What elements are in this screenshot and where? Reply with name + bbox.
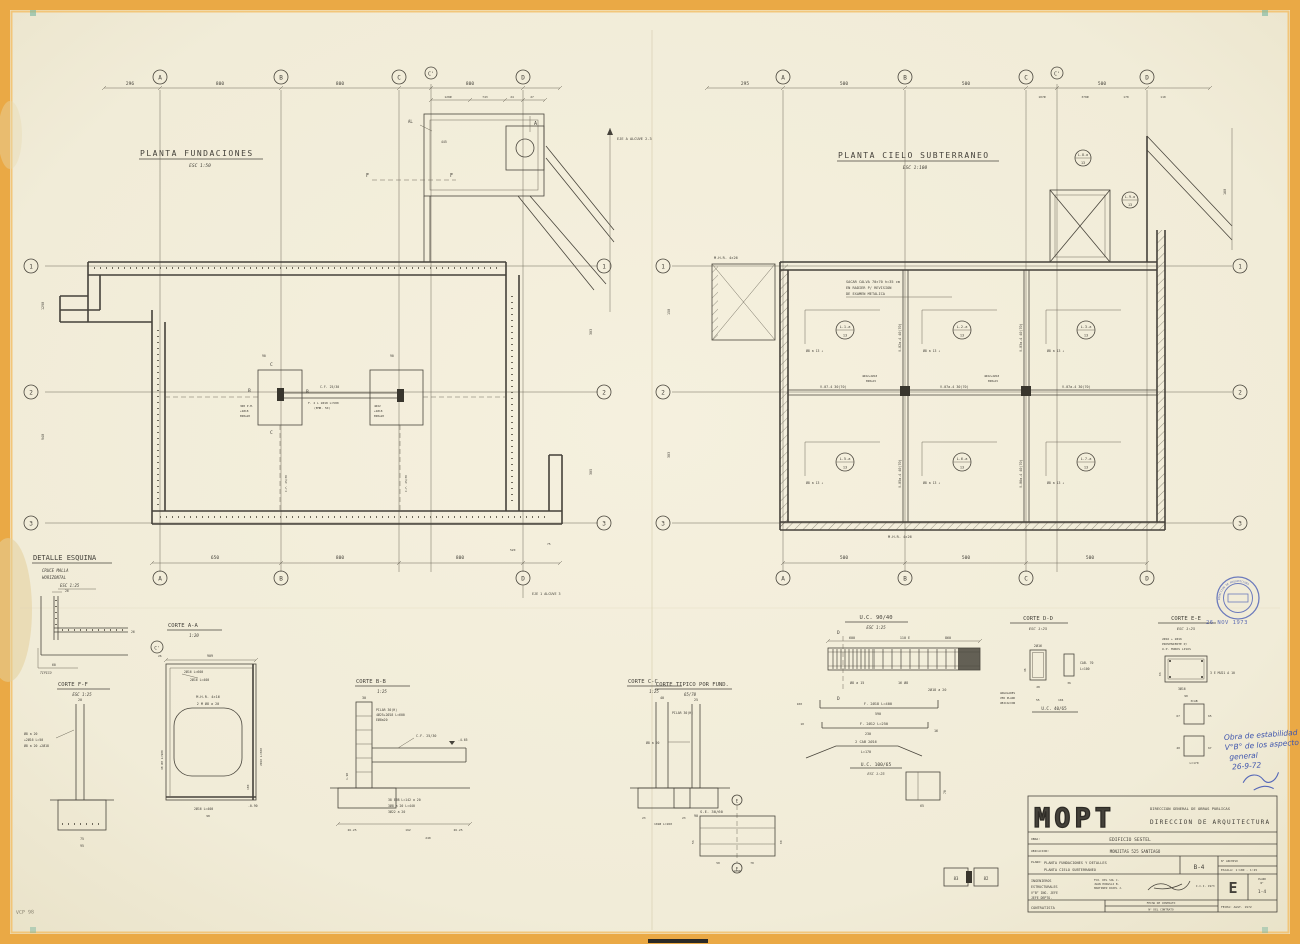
field-value: EDIFICIO SESTEL xyxy=(1109,837,1151,843)
rebar-label: 48 Ø8 L=900 xyxy=(159,750,164,770)
plan-title: PLANTA CIELO SUBTERRANEO xyxy=(838,151,990,160)
dim-label: 26 xyxy=(65,589,69,593)
mesh-label: M.H.R. 4×26 xyxy=(714,256,738,260)
dim-label: 10 xyxy=(800,722,804,726)
scanned-drawing: VCP 98 PLANTA FUNDACIONES ESC 1:50 A B C… xyxy=(0,0,1300,944)
slab-mark: L.9-a13 xyxy=(1122,192,1138,208)
slab-id: L.2-a xyxy=(957,325,968,329)
grid-letter: A xyxy=(158,75,162,82)
note-line: VER PLANO xyxy=(1000,696,1015,700)
block-mark: 82 xyxy=(984,876,989,881)
rebar-label: 3Ø22 a 20 xyxy=(388,809,405,814)
dim-label: 24 xyxy=(510,95,514,99)
note-line: UBICACION xyxy=(1000,701,1015,705)
dim-label: 150 xyxy=(667,309,671,315)
sheet-letter: E xyxy=(1228,879,1237,897)
plan-scale: ESC 1:50 xyxy=(189,163,211,169)
dim-label: 67 xyxy=(1208,746,1212,750)
dim-label: 370Ø xyxy=(1081,94,1088,99)
blueprint-sheet: VCP 98 PLANTA FUNDACIONES ESC 1:50 A B C… xyxy=(0,0,1300,944)
detail-title: S.E. 30/60 xyxy=(700,809,724,814)
mopt-logo: MOPT xyxy=(1034,803,1115,834)
grid-number: 2 xyxy=(1238,390,1242,397)
rebar-label: 3CAB xyxy=(1190,699,1197,703)
slab-thickness: 13 xyxy=(960,334,964,338)
grid-number: 1 xyxy=(661,264,665,271)
dim-label: 500 xyxy=(962,81,970,87)
note-line: ANGULARES xyxy=(1000,691,1015,695)
rebar-label: L=100 xyxy=(1080,667,1090,671)
grid-letter: A xyxy=(781,576,785,583)
slab-rebar: Ø8 a 13 ↓ xyxy=(806,348,823,353)
dim-label: 107Ø xyxy=(1038,94,1045,99)
archive-code: VCP 98 xyxy=(16,909,34,916)
dim-label: 104 xyxy=(1058,698,1064,702)
slab-thickness: 13 xyxy=(1084,334,1088,338)
detail-title: CORTE TIPICO POR FUND. xyxy=(656,682,729,688)
section-mark: D xyxy=(837,630,840,636)
slab-id: L.3-a xyxy=(1081,325,1092,329)
section-mark: B xyxy=(248,388,251,394)
detail-scale: 1:25 xyxy=(649,689,659,694)
section-mark: C xyxy=(270,430,273,436)
field-label: N° ARCHIVO xyxy=(1221,859,1238,863)
dim-label: 110 E xyxy=(900,636,910,640)
grid-number: 3 xyxy=(661,521,665,528)
grid-letter: C' xyxy=(1054,72,1060,78)
slab-rebar: Ø8 a 13 ↓ xyxy=(806,480,823,485)
rebar-label: Ø8 a 15 xyxy=(850,680,864,685)
grid-letter: D xyxy=(1145,75,1149,82)
date-stamp: 26 NOV 1973 xyxy=(1206,620,1248,626)
slab-id: L.5-a xyxy=(840,457,851,461)
detail-scale: ESC 1:25 xyxy=(867,772,884,776)
dim-label: 90 xyxy=(694,814,698,818)
dim-label: 743 xyxy=(482,95,488,99)
dim-label: 23 xyxy=(682,816,686,820)
beam-joint xyxy=(1021,386,1031,396)
grid-letter: C' xyxy=(428,72,434,78)
rebar-label: +2Ø18 xyxy=(374,408,383,413)
dim-label: 102Ø L=260 xyxy=(654,821,672,826)
detail-title: CORTE D-D xyxy=(1023,616,1053,622)
grid-letter: C xyxy=(397,75,401,82)
detail-title: CORTE B-B xyxy=(356,679,386,685)
dim-label: 520 xyxy=(510,548,516,552)
dim-label: 90 xyxy=(1184,694,1188,698)
slab-thickness: 13 xyxy=(1128,203,1132,207)
dim-label: 500 xyxy=(1086,555,1094,561)
field-label: JEFE DEPTO. xyxy=(1031,896,1052,900)
pedestal xyxy=(397,389,404,402)
detail-note: TIPICO xyxy=(40,671,52,675)
dim-label: 170 xyxy=(1123,95,1129,99)
section-mark: D xyxy=(837,696,840,702)
dim-label: 100 xyxy=(797,702,803,706)
rebar-label: 2Ø16 xyxy=(1034,643,1042,648)
grid-number: 1 xyxy=(602,264,606,271)
dim-label: 70 xyxy=(943,790,947,794)
rebar-label: 4Ø22 xyxy=(374,403,381,408)
dim-label: 20 xyxy=(78,698,82,702)
note-line: DE EXAMEN METALICA xyxy=(846,292,886,296)
dim-label: 295 xyxy=(741,81,749,87)
dim-label: 180 xyxy=(246,784,250,790)
dim-label: 303 xyxy=(667,452,671,458)
mesh-label: M.H.R. 4×26 xyxy=(888,535,912,539)
detail-subtitle: CRUCE MALLA xyxy=(42,568,69,573)
field-label: OBRA: xyxy=(1031,837,1040,841)
beam-label: V.07a-4 30(70) xyxy=(940,385,969,389)
slab-id: L.1-a xyxy=(840,325,851,329)
detail-title: U.C. 90/40 xyxy=(859,615,892,621)
grid-number: 2 xyxy=(29,390,33,397)
beam-label: V.03a-4 40(70) xyxy=(1019,323,1023,352)
dim-label: 230 xyxy=(865,732,871,736)
beam-label: V.06a-4 40(70) xyxy=(1019,459,1023,488)
grid-letter: D xyxy=(521,576,525,583)
axis-note: EJE 1 ALCUVE 3 xyxy=(532,592,561,596)
dim-label: 590 xyxy=(875,712,881,716)
dim-label: 40 xyxy=(1176,746,1180,750)
dim-label: 90 xyxy=(262,354,266,358)
dim-label: L=170 xyxy=(861,750,871,754)
field-value: MONJITAS 525 SANTIAGO xyxy=(1110,849,1161,854)
rebar-label: 2Ø16 L=600 xyxy=(184,669,203,674)
beam-label: C.F. 25/30 xyxy=(416,734,436,738)
field-label: FECHA DE CONTRATO xyxy=(1147,901,1176,905)
grid-number: 3 xyxy=(29,521,33,528)
field-value: PLANTA FUNDACIONES Y DETALLES xyxy=(1044,861,1107,865)
dim-label: 1040 xyxy=(733,869,740,873)
dim-label: 50 xyxy=(716,861,720,865)
grid-letter: A xyxy=(781,75,785,82)
rebar-label: 2Ø16 L=600 xyxy=(258,748,263,766)
dim-label: 26.25 xyxy=(453,828,462,832)
dim-label: 65 xyxy=(1208,714,1212,718)
dim-label: 95 xyxy=(80,844,84,848)
dim-label: 65 xyxy=(920,804,924,808)
dim-label: 53 xyxy=(691,840,695,844)
pedestal xyxy=(277,388,284,401)
dim-label: 120Ø xyxy=(444,94,451,99)
dim-label: 27 xyxy=(530,95,534,99)
beam-label: V.07-4 30(70) xyxy=(820,385,847,389)
dim-label: 500 xyxy=(1098,81,1106,87)
beam-label: C.F. 25/30 xyxy=(404,475,408,492)
rebar-label: EØ8a15 xyxy=(866,378,876,383)
rebar-label: (EMB. 50) xyxy=(314,406,330,410)
note-line: EN RADIER P/ REVISION xyxy=(846,286,891,290)
dim-label: 40 xyxy=(660,696,664,700)
beam-label: V.07a-4 30(70) xyxy=(1062,385,1091,389)
grid-number: 2 xyxy=(661,390,665,397)
dim-label: 600 xyxy=(849,636,855,640)
slab-id: L.7-a xyxy=(1081,457,1092,461)
dim-label: 240 xyxy=(425,836,431,840)
beam-label: C.F. 25/30 xyxy=(284,475,288,492)
dim-label: 860 xyxy=(945,636,951,640)
note-line: U.P. MUROS LISOS xyxy=(1162,647,1191,651)
field-value: FECHA: AGST. 1972 xyxy=(1221,905,1252,909)
section-mark: F xyxy=(450,173,453,179)
slab-thickness: 13 xyxy=(843,466,847,470)
field-label: PLANO: xyxy=(1031,860,1042,864)
rebar-label: EØ8a20 xyxy=(374,413,384,418)
stirrup-ticks xyxy=(874,649,958,669)
rebar-label: PILAR 30(H) xyxy=(672,711,693,715)
dim-label: 55 xyxy=(1036,698,1040,702)
dim-label: 162 xyxy=(405,828,411,832)
rebar-label: F. 2Ø12 L=250 xyxy=(860,721,888,726)
rebar-label: CAB. 70 xyxy=(1080,661,1094,665)
field-label: CONTRATISTA xyxy=(1031,906,1056,910)
detail-title: CORTE F-F xyxy=(58,682,88,688)
field-label: N° DEL CONTRATO xyxy=(1148,908,1174,912)
dim-label: L=170 xyxy=(1189,761,1198,765)
rebar-label: 3 E MU21 A 10 xyxy=(1210,671,1235,675)
grid-number: 3 xyxy=(602,521,606,528)
detail-title: U.C. 100/65 xyxy=(861,762,892,768)
date-note: I.C.I. 1973 xyxy=(1196,884,1215,888)
dim-label: 303 xyxy=(589,329,593,335)
dim-label: 36 xyxy=(1067,681,1071,685)
rebar-label: 4Ø22+2Ø18 xyxy=(862,373,877,378)
dim-label: 75 xyxy=(80,837,84,841)
dim-label: 16 xyxy=(934,729,938,733)
rebar-label: 3Ø8 a 20 L=440 xyxy=(388,803,415,808)
rebar-label: Ø8 a 20 +2Ø18 xyxy=(24,743,49,748)
level-label: -0.90 xyxy=(248,804,258,808)
dim-label: 1290 xyxy=(41,302,45,310)
rebar-label: 2Ø18 a 20 xyxy=(928,687,946,692)
rebar-label: 4Ø25+2Ø18 L=600 xyxy=(376,712,405,717)
plan-scale: ESC 1:100 xyxy=(903,165,928,171)
rebar-label: 3Ø16 xyxy=(1178,686,1186,691)
detail-title: CORTE A-A xyxy=(168,623,198,629)
dim-label: 46 xyxy=(1023,668,1027,672)
dim-label: 26 xyxy=(158,654,162,658)
pit-label: AL xyxy=(408,119,413,124)
grid-letter: C xyxy=(1024,576,1028,583)
dim-label: 26 xyxy=(131,630,135,634)
section-mark: F xyxy=(366,173,369,179)
slab-rebar: Ø8 a 13 ↓ xyxy=(923,348,940,353)
section-mark: C xyxy=(270,362,273,368)
section-mark: A xyxy=(534,121,537,127)
dim-label: 67 xyxy=(1176,714,1180,718)
rebar-label: PILAR 30(H) xyxy=(376,708,397,712)
slab-thickness: 13 xyxy=(843,334,847,338)
beam-joint xyxy=(900,386,910,396)
dim-label: 28 xyxy=(1036,685,1040,689)
dim-label: 98 xyxy=(206,814,210,818)
grid-letter: A xyxy=(158,576,162,583)
stirrup-ticks xyxy=(830,649,874,669)
org-line: DIRECCION GENERAL DE OBRAS PUBLICAS xyxy=(1150,806,1231,811)
slab-thickness: 13 xyxy=(960,466,964,470)
rebar-label: 3Ø8 P.M. xyxy=(240,403,254,408)
rebar-label: 2 M Ø8 a 20 xyxy=(197,701,219,706)
detail-scale: ESC 1:25 xyxy=(866,625,886,630)
field-label: N° xyxy=(1260,881,1264,885)
slab-rebar: Ø8 a 13 ↓ xyxy=(1047,348,1064,353)
detail-scale: ESC 1:25 xyxy=(72,692,92,697)
rebar-label: +2Ø16 L=50 xyxy=(24,737,43,742)
rebar-label: Ø8 a 20 xyxy=(646,740,660,745)
grid-letter: C' xyxy=(154,646,159,652)
rebar-label: 2Ø16 L=400 xyxy=(194,806,213,811)
rebar-label: Ø8 a 20 xyxy=(24,731,38,736)
field-label: ESTRUCTURALES xyxy=(1031,885,1058,889)
grid-letter: D xyxy=(521,75,525,82)
detail-scale: 65/70 xyxy=(684,692,697,697)
detail-scale: 1:25 xyxy=(377,689,387,694)
detail-scale: 1:20 xyxy=(189,633,199,638)
dim-label: 940 xyxy=(41,434,45,440)
detail-scale: ESC 1:25 xyxy=(1177,626,1196,631)
slab-thickness: 13 xyxy=(1081,161,1085,165)
detail-title: CORTE E-E xyxy=(1171,616,1201,622)
rebar-label: F. 2 L 2Ø18 L=580 xyxy=(308,400,339,405)
engineer-name: MARTINEZ ROJEL J. xyxy=(1094,886,1123,890)
dim-label: 500 xyxy=(962,555,970,561)
dim-label: 500 xyxy=(840,81,848,87)
grid-number: 2 xyxy=(602,390,606,397)
dim-label: 25 xyxy=(694,698,698,702)
dim-label: 70 xyxy=(750,861,754,865)
detail-title: U.C. 40/65 xyxy=(1041,706,1067,711)
grid-letter: B xyxy=(279,576,283,583)
note-line: 2Ø16 + 2Ø16 xyxy=(1162,636,1182,641)
sheet-code: B-4 xyxy=(1194,864,1205,871)
rebar-label: 4Ø22+2Ø18 xyxy=(984,373,999,378)
grid-number: 1 xyxy=(1238,264,1242,271)
slab-thickness: 13 xyxy=(1084,466,1088,470)
slab-rebar: Ø8 a 13 ↓ xyxy=(1047,480,1064,485)
rebar-label: EØ8a15 xyxy=(988,378,998,383)
level-label: -4.65 xyxy=(458,738,468,742)
detail-subtitle: HORIZONTAL xyxy=(41,575,67,580)
note-line: SACAR CALVA 70×70 h=35 cm xyxy=(846,280,900,284)
section-mark: B xyxy=(306,389,309,395)
axis-note: EJE A ALCUVE 2-3 xyxy=(617,137,652,141)
field-label: UBICACION: xyxy=(1031,849,1049,853)
mesh-label: M.H.R. 4×16 xyxy=(196,695,220,699)
slab-rebar: Ø8 a 13 ↓ xyxy=(923,480,940,485)
detail-title: DETALLE ESQUINA xyxy=(33,554,97,562)
grid-letter: B xyxy=(903,75,907,82)
detail-scale: ESC 1:25 xyxy=(1029,626,1048,631)
grid-letter: B xyxy=(903,576,907,583)
rebar-label: EØ8a20 xyxy=(376,717,388,722)
dim-label: 110 xyxy=(1160,95,1166,99)
slab-id: L.8-a xyxy=(1078,153,1088,157)
rebar-label: +2Ø18 xyxy=(240,408,249,413)
note-line: PROVENIENTE P/ xyxy=(1162,642,1187,646)
field-label: V°B° ING. JEFE xyxy=(1031,891,1058,895)
grid-letter: D xyxy=(1145,576,1149,583)
dim-label: 1.90 xyxy=(345,773,349,780)
rebar-label: EØ8a20 xyxy=(240,413,250,418)
dim-label: 60 xyxy=(779,840,783,844)
dim-label: 305 xyxy=(589,469,593,475)
grid-letter: B xyxy=(279,75,283,82)
dim-label: 23 xyxy=(642,816,646,820)
rebar-label: 16 Ø8 xyxy=(898,680,908,685)
slab-id: L.9-a xyxy=(1125,195,1135,199)
dim-label: 160 xyxy=(1223,189,1227,195)
field-label: INGENIEROS xyxy=(1031,879,1051,883)
slab-mark: L.8-a13 xyxy=(1075,150,1091,166)
beam-label: V.05a-4 40(70) xyxy=(898,459,902,488)
detail-scale: ESC 1:25 xyxy=(60,583,80,588)
plan-title: PLANTA FUNDACIONES xyxy=(140,149,254,158)
dim-label: 90 xyxy=(390,354,394,358)
dim-label: 800 xyxy=(466,81,474,87)
dim-label: 800 xyxy=(456,555,464,561)
beam-label: V.02a-4 40(70) xyxy=(898,323,902,352)
scale-value: ESCALA: 1:100 - 1:25 xyxy=(1221,868,1257,872)
dim-label: 650 xyxy=(211,555,219,561)
field-value: PLANTA CIELO SUBTERRANEO xyxy=(1044,868,1096,872)
dim-label: 60 xyxy=(52,663,56,667)
dim-label: 75 xyxy=(547,542,551,546)
org-line: DIRECCION DE ARQUITECTURA xyxy=(1150,819,1270,826)
dim-label: 909 xyxy=(207,654,213,658)
grid-letter: C xyxy=(1024,75,1028,82)
dim-label: 63 xyxy=(1158,672,1162,676)
detail-title: CORTE C-C xyxy=(628,679,658,685)
dim-label: 296 xyxy=(126,81,134,87)
dim-label: 26.25 xyxy=(347,828,356,832)
slab-id: L.6-a xyxy=(957,457,968,461)
support-block xyxy=(958,648,980,670)
rebar-label: 2 CAB 2Ø16 xyxy=(855,739,877,744)
grid-number: 1 xyxy=(29,264,33,271)
dim-label: 445 xyxy=(441,140,447,144)
dim-label: 800 xyxy=(336,81,344,87)
rebar-label: 2Ø16 L=400 xyxy=(190,677,209,682)
sheet-number: 1-4 xyxy=(1258,889,1266,895)
dim-label: 30 xyxy=(362,696,366,700)
rebar-label: 38 EØ8 L=142 a 20 xyxy=(388,797,421,802)
grid-number: 3 xyxy=(1238,521,1242,528)
field-label: PLANO xyxy=(1258,877,1266,881)
dim-label: 800 xyxy=(336,555,344,561)
rebar-label: F. 2Ø18 L=400 xyxy=(864,701,892,706)
block-mark: 83 xyxy=(954,876,959,881)
dim-label: 500 xyxy=(840,555,848,561)
dim-label: 800 xyxy=(216,81,224,87)
beam-label: C.F. 25/30 xyxy=(320,385,339,389)
